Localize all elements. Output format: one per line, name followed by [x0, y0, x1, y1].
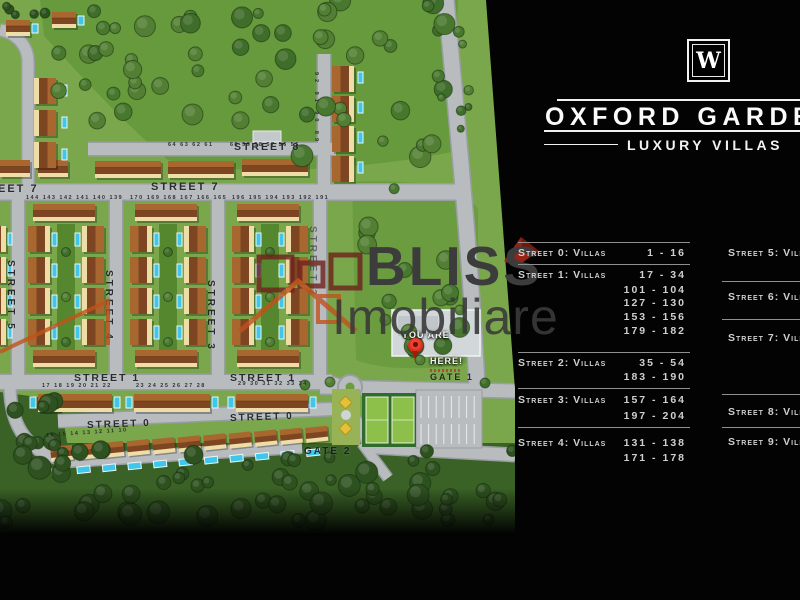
legend-street-label: Street 7: Villas: [728, 332, 800, 344]
site-map: Street 8Street 7Street 7Street 5Street 4…: [0, 0, 515, 535]
legend-villa-range: 183 - 190: [518, 371, 686, 383]
title-rule-top: [557, 99, 800, 101]
legend-separator: [518, 427, 690, 428]
legend-separator: [518, 352, 690, 353]
legend-villa-range: 1 - 16: [518, 247, 686, 259]
location-pin-icon: [408, 338, 423, 353]
legend-separator: [518, 264, 690, 265]
legend-separator: [722, 281, 800, 282]
site-plan-poster: Street 8Street 7Street 7Street 5Street 4…: [0, 0, 800, 600]
project-title: OXFORD GARDENS: [545, 103, 800, 132]
marker-caption-strip: [430, 369, 460, 372]
legend-separator: [722, 427, 800, 428]
legend-villa-range: 157 - 164: [518, 394, 686, 406]
legend-villa-range: 153 - 156: [518, 311, 686, 323]
legend-street-label: Street 6: Villas: [728, 291, 800, 303]
legend-villa-range: 17 - 34: [518, 269, 686, 281]
map-illustration: [0, 0, 515, 535]
legend-street-label: Street 8: Villas: [728, 406, 800, 418]
you-are-here-text: YOU ARE: [402, 330, 450, 340]
legend-separator: [518, 388, 690, 389]
legend-villa-range: 179 - 182: [518, 325, 686, 337]
legend-villa-range: 171 - 178: [518, 452, 686, 464]
legend-street-label: Street 5: Villas: [728, 247, 800, 259]
you-are-here-marker: YOU ARE HERE!: [396, 326, 466, 376]
you-are-here-text2: HERE!: [430, 356, 463, 366]
legend-villa-range: 197 - 204: [518, 410, 686, 422]
legend-street-label: Street 9: Villas: [728, 436, 800, 448]
legend-separator: [722, 319, 800, 320]
legend-separator: [518, 242, 690, 243]
legend-villa-range: 131 - 138: [518, 437, 686, 449]
w-logo-inner-frame: W: [692, 44, 725, 77]
w-logo-letter: W: [696, 50, 721, 72]
legend-separator: [722, 394, 800, 395]
legend-villa-range: 101 - 104: [518, 284, 686, 296]
legend-villa-range: 35 - 54: [518, 357, 686, 369]
title-rule-bottom: [544, 130, 800, 132]
subtitle-rule: [544, 144, 618, 145]
legend-villa-range: 127 - 130: [518, 297, 686, 309]
w-logo: W: [687, 39, 730, 82]
project-subtitle: LUXURY VILLAS: [627, 137, 783, 153]
